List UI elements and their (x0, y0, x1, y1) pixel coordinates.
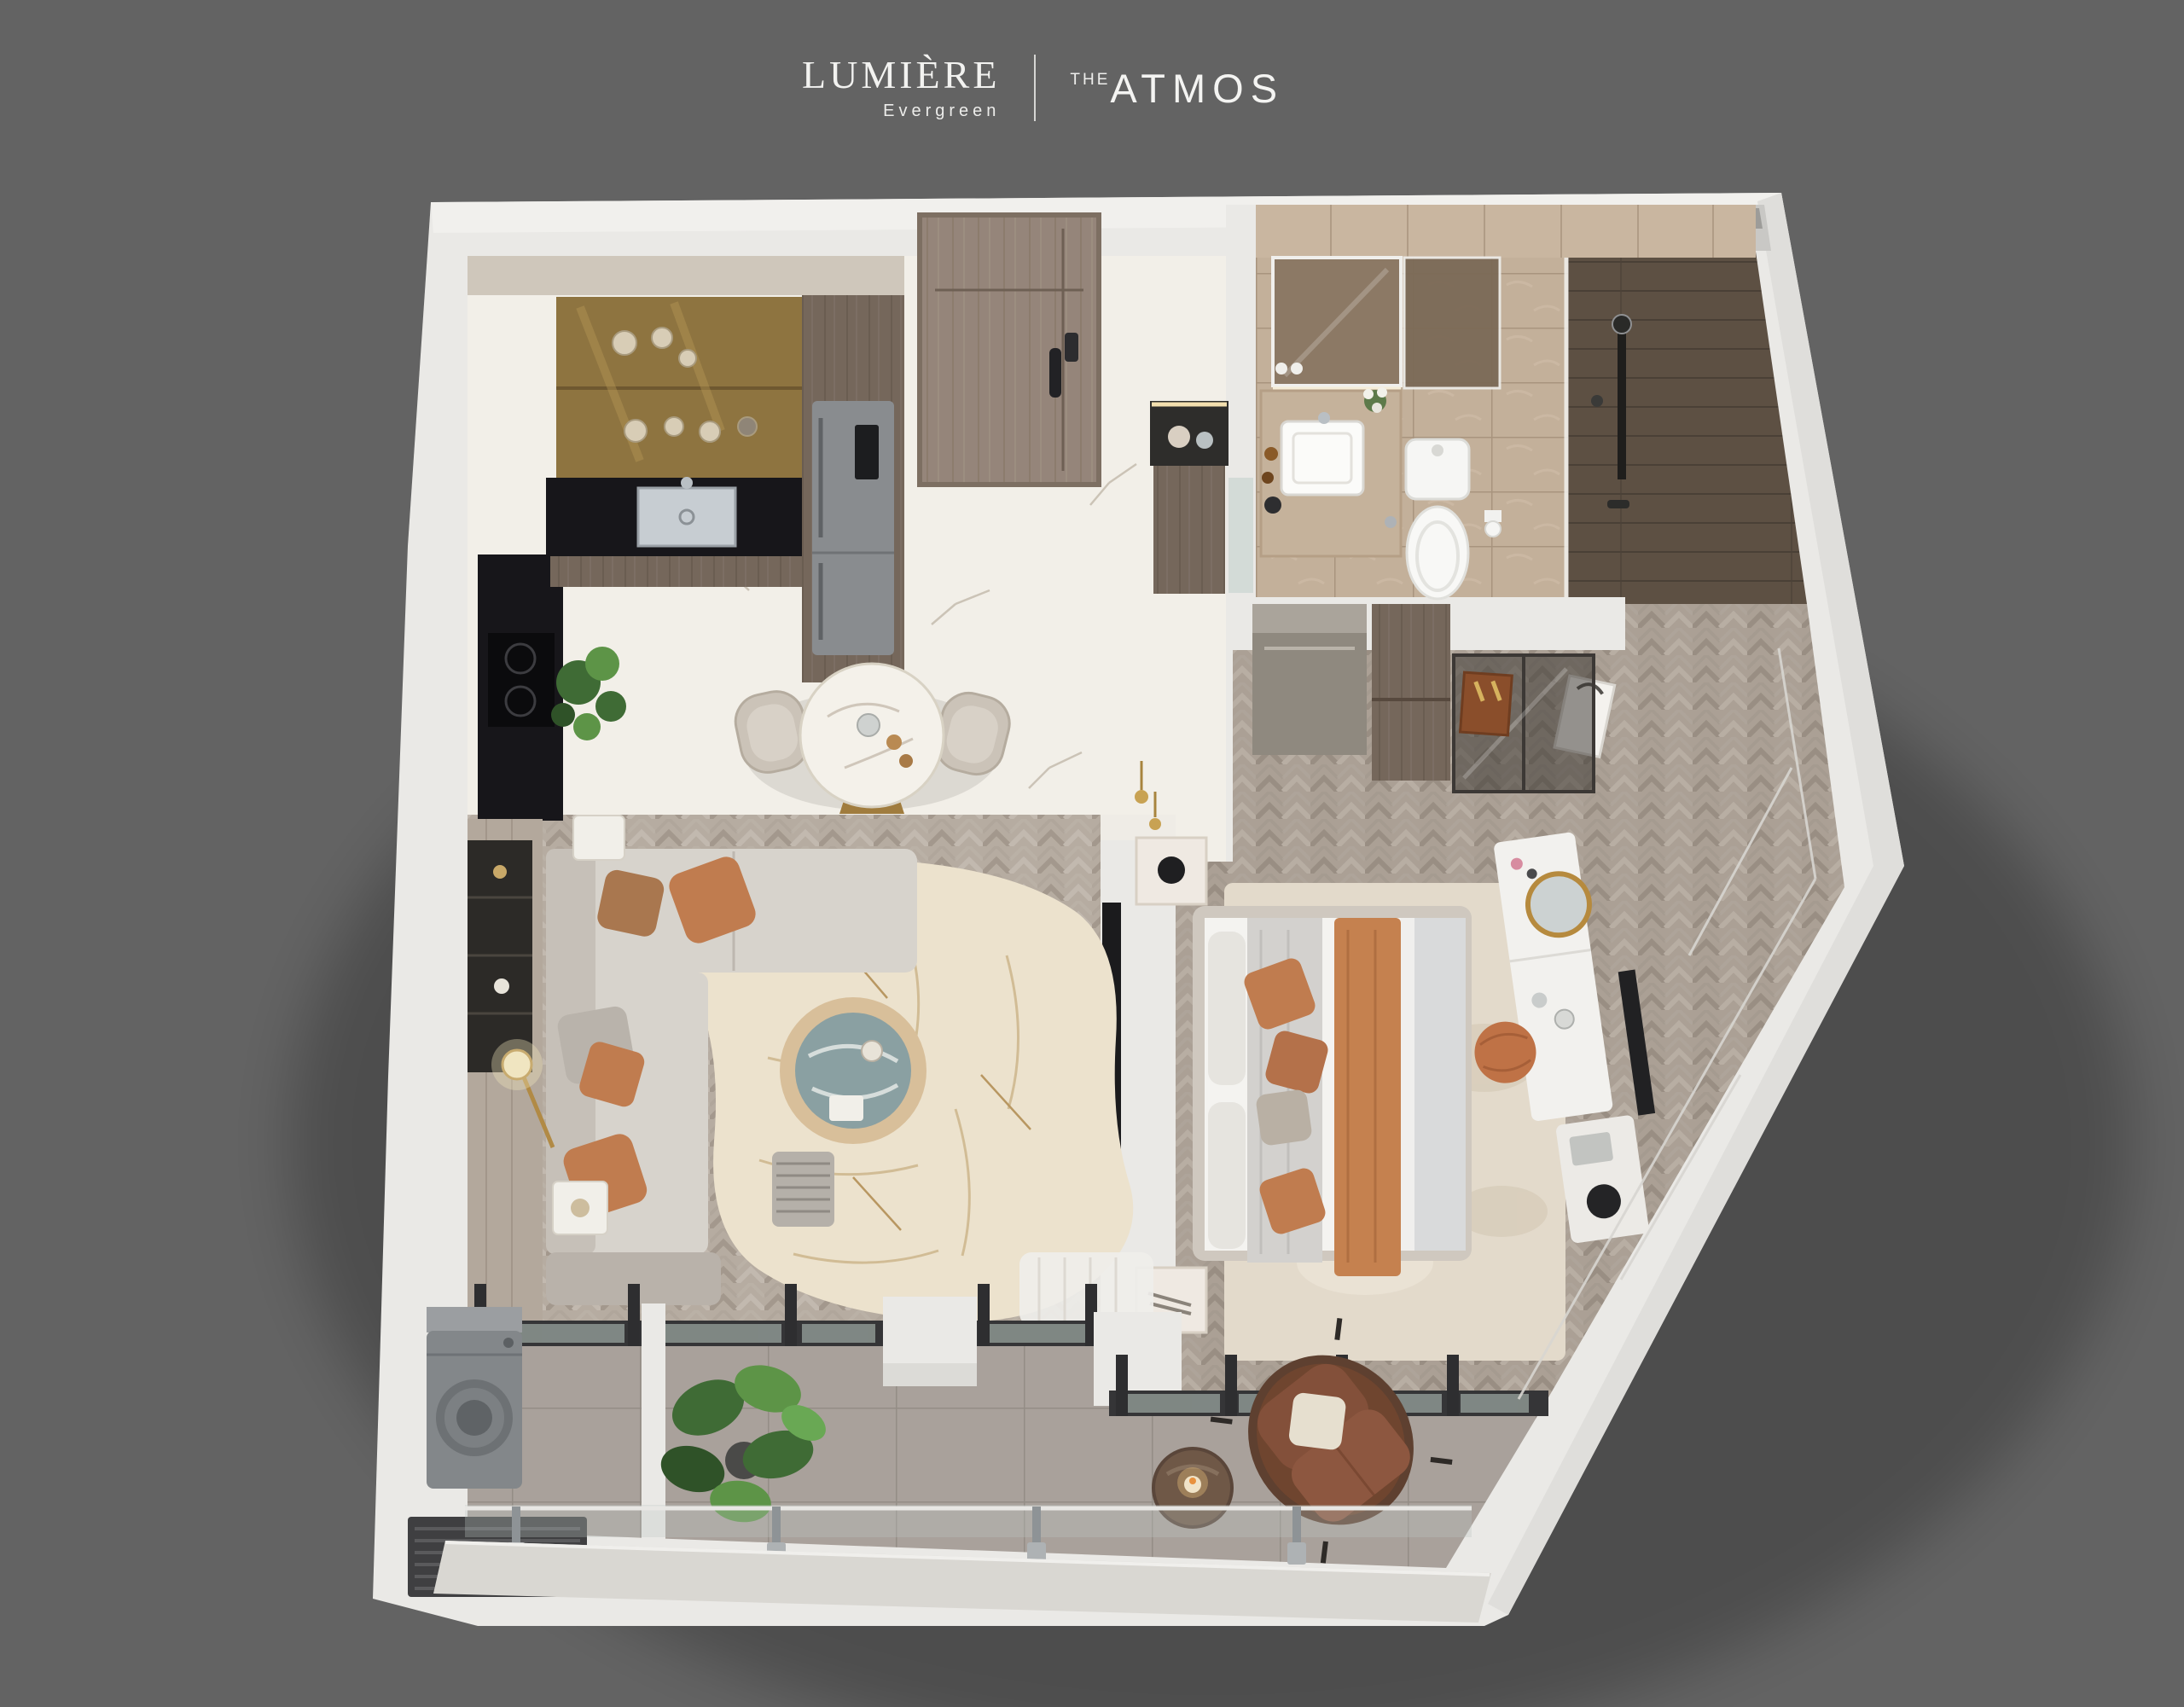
coffee-table (780, 997, 926, 1144)
console-vase-1 (1168, 426, 1190, 448)
candle-flame (1189, 1478, 1196, 1484)
induction-hob (488, 633, 555, 727)
nightstand-top (1136, 838, 1206, 904)
coffee-table-cup (862, 1041, 882, 1061)
bed-runner-orange (1334, 918, 1401, 1276)
floorplan-stage: LUMIÈRE Evergreen THE ATMOS (0, 0, 2184, 1707)
tp-holder (1484, 510, 1501, 537)
washer-knob (503, 1338, 514, 1348)
shower-glass-panel (1404, 258, 1500, 388)
floor-lamp-glow (491, 1039, 543, 1090)
soap-dish (1264, 496, 1281, 514)
closet-wood-unit (1372, 604, 1450, 781)
shower-mixer (1607, 500, 1629, 508)
side-table-top (573, 816, 624, 860)
glass-wardrobe (1454, 655, 1594, 792)
dining-decor-cup-1 (886, 734, 902, 750)
bath-faucet (1318, 412, 1330, 424)
bathroom-door (1228, 478, 1253, 593)
bed-duvet-edge (1401, 918, 1414, 1251)
dining-decor-cup-2 (899, 754, 913, 768)
washing-machine (427, 1307, 522, 1489)
shower-head (1612, 315, 1631, 334)
entry-door-handle (1049, 348, 1061, 398)
kitchen-upper-cabinet-top (468, 256, 904, 295)
fridge-control-panel (855, 425, 879, 479)
entry-door-smartlock (1065, 333, 1078, 362)
toilet (1406, 439, 1469, 599)
washer-door-glass (456, 1400, 492, 1436)
fridge (812, 401, 894, 655)
floorplan-render (0, 0, 2184, 1707)
kitchen-sink (638, 488, 735, 546)
nightstand-tray (1158, 856, 1185, 884)
kitchen-base-cabinet (550, 556, 802, 587)
amber-bottle-1 (1264, 447, 1278, 461)
coffee-table-tray (829, 1095, 863, 1121)
ribbed-ottoman (772, 1152, 834, 1227)
bed-headboard-pillow-2 (1208, 1102, 1246, 1249)
washer-top (427, 1307, 522, 1333)
window-pier-face (883, 1363, 977, 1386)
entry-console (1150, 401, 1228, 594)
bidet-sprayer (1385, 516, 1397, 528)
dining-decor-vase (857, 714, 880, 736)
leather-chest (1461, 672, 1513, 735)
side-table-cup (571, 1199, 590, 1217)
kitchen-faucet (681, 477, 693, 489)
vanity-tray (1569, 1132, 1613, 1166)
console-vase-2 (1196, 432, 1213, 449)
media-decor-gold (493, 865, 507, 879)
amber-bottle-2 (1262, 472, 1274, 484)
dresser-gray-front (1252, 633, 1367, 755)
toiletry-2 (1291, 363, 1303, 374)
dresser-gray-top (1252, 604, 1367, 633)
toiletry-1 (1275, 363, 1287, 374)
sofa-pillow-brown (595, 868, 666, 938)
bed (1193, 906, 1472, 1276)
media-decor-white (494, 978, 509, 994)
bed-headboard-pillow-1 (1208, 932, 1246, 1085)
chair-pillow (1288, 1392, 1347, 1451)
toilet-flush-button (1432, 444, 1443, 456)
bed-pillow-gray (1255, 1089, 1313, 1147)
hand-shower (1591, 395, 1603, 407)
